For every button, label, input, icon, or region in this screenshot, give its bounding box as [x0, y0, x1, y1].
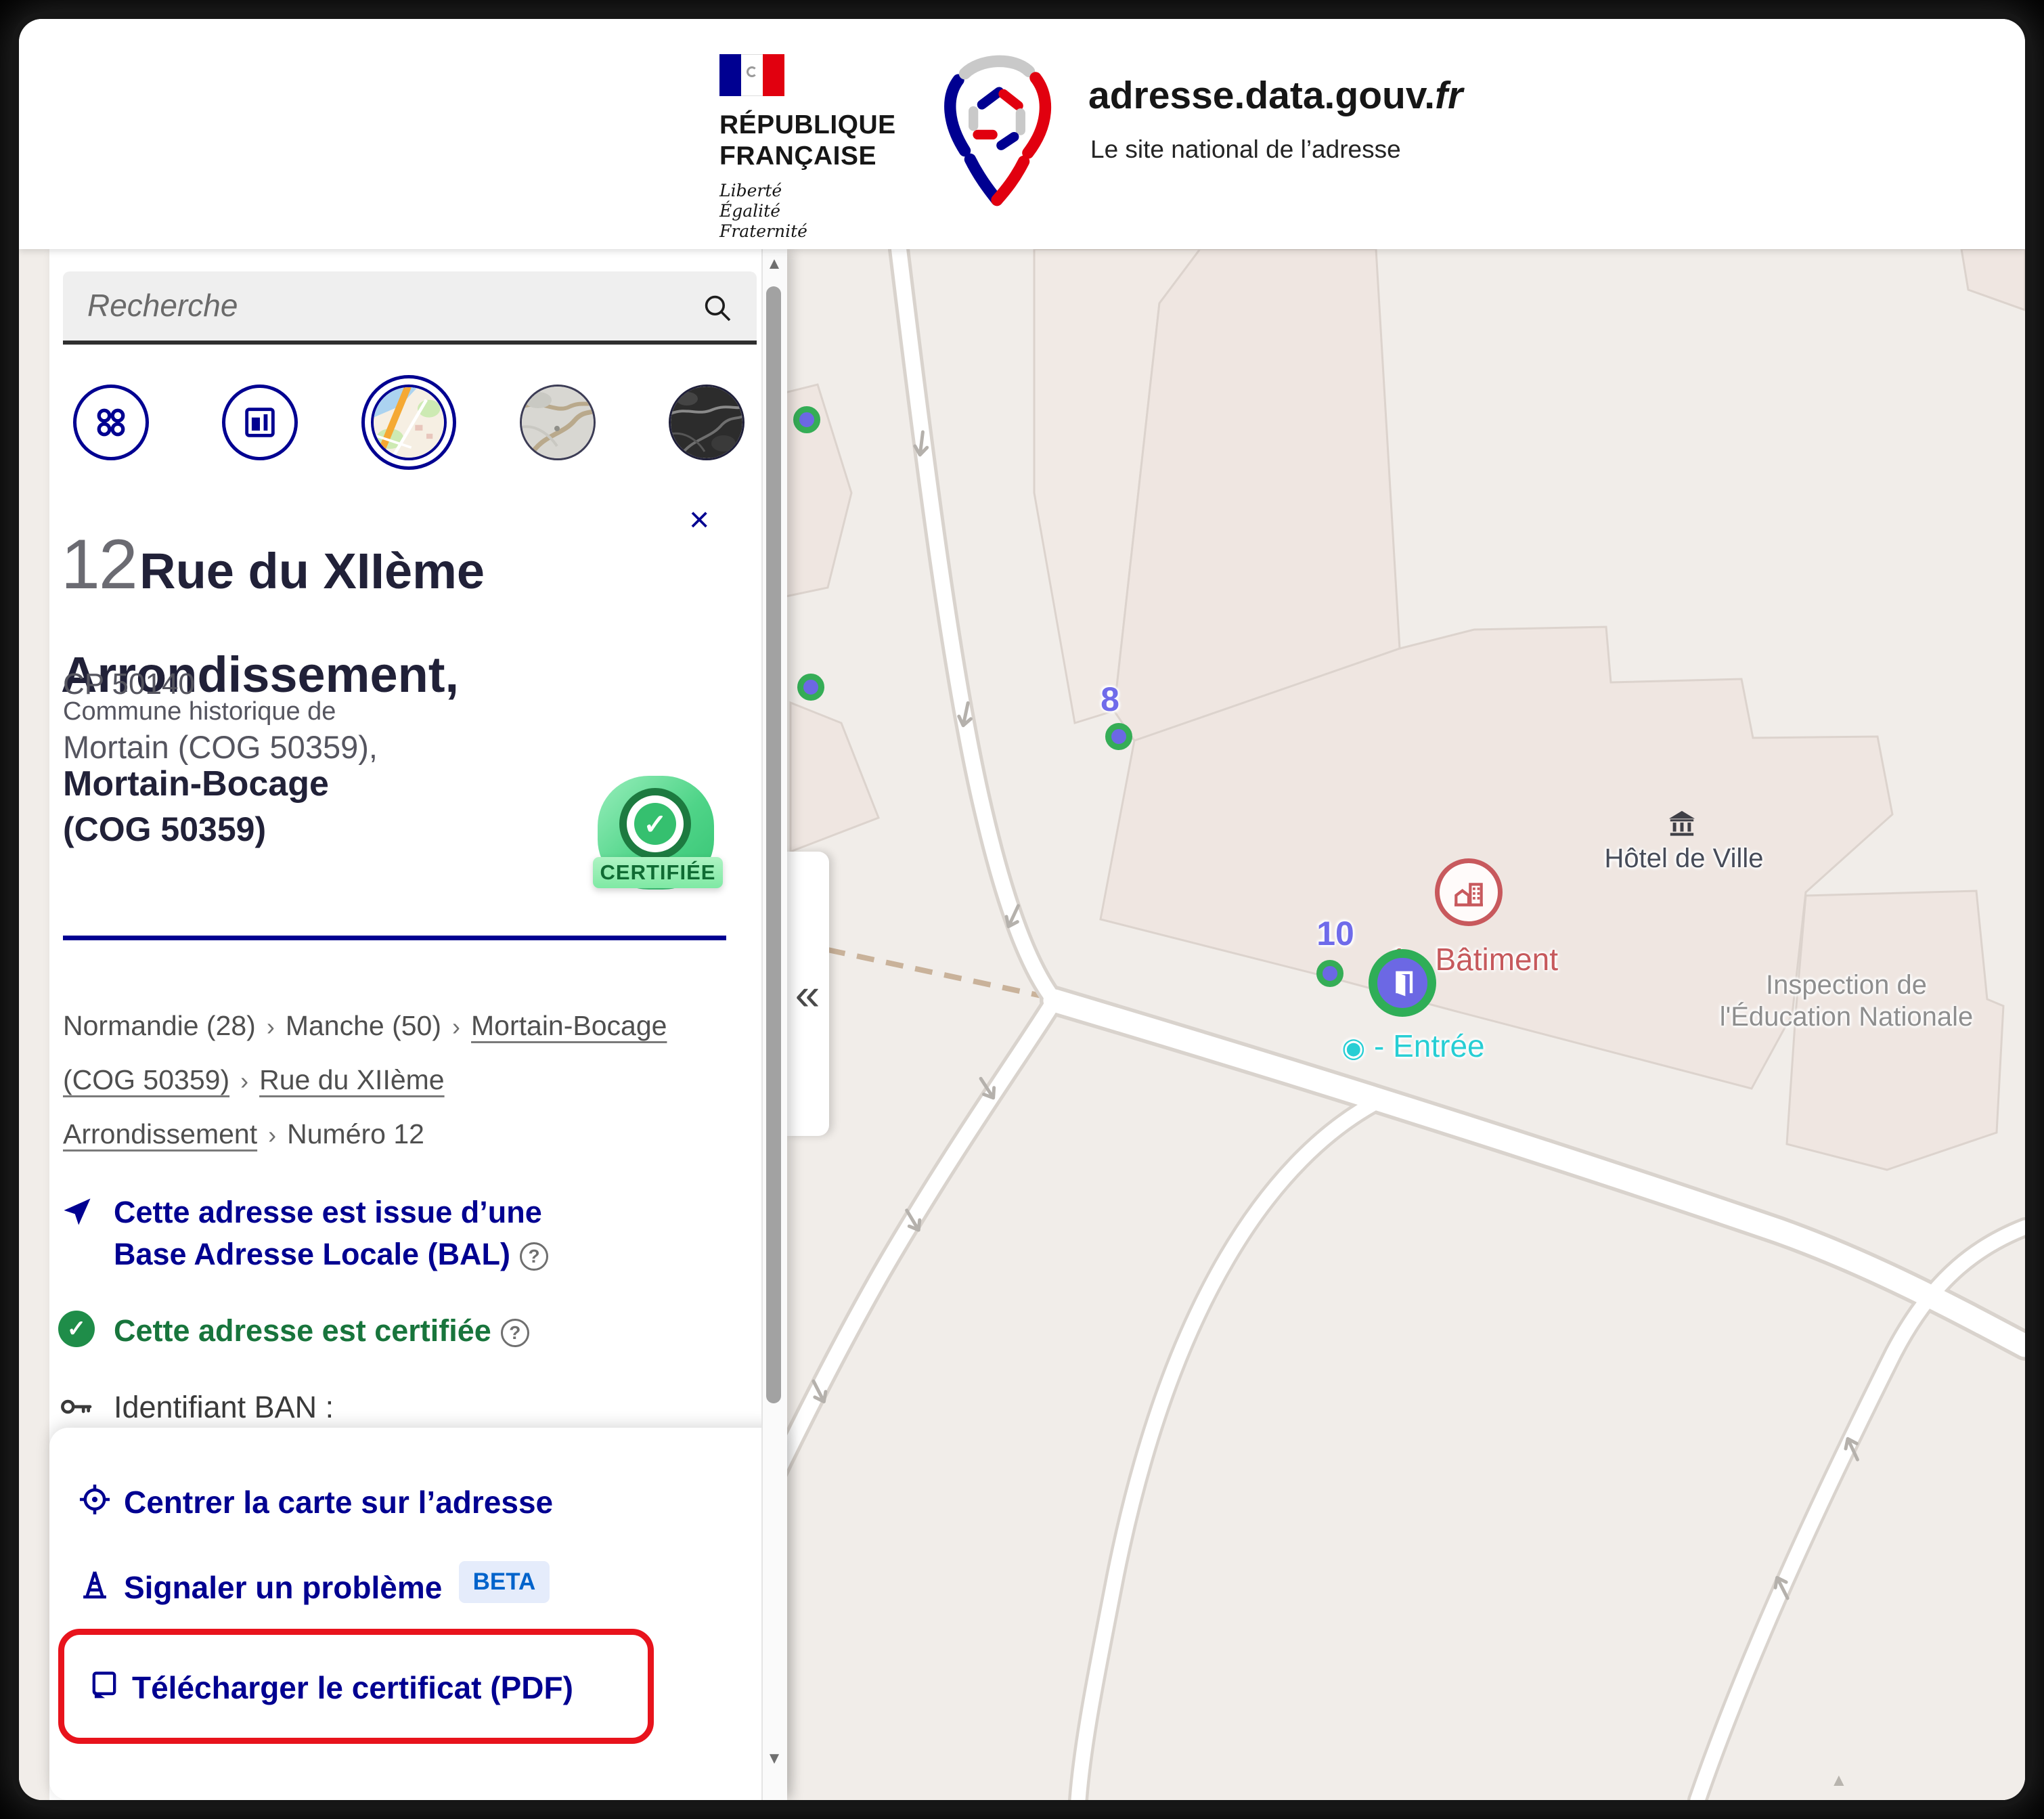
layer-button-satellite[interactable] [669, 385, 745, 460]
satellite-thumbnail [671, 387, 742, 458]
building-poi-icon[interactable] [1435, 858, 1503, 926]
beta-badge: BETA [459, 1561, 550, 1603]
bal-plane-icon [60, 1194, 95, 1229]
layer-button-cadastre[interactable] [222, 385, 298, 460]
address-postcode: CP 50140 [63, 667, 195, 701]
townhall-label: Hôtel de Ville [1549, 843, 1819, 874]
site-subtitle: Le site national de l’adresse [1090, 135, 1401, 164]
french-flag-icon [719, 54, 784, 96]
marker-8-label: 8 [1082, 680, 1138, 719]
highlight-annotation [58, 1629, 654, 1744]
key-icon [57, 1388, 95, 1426]
breadcrumb-item-departement[interactable]: Manche (50) [286, 1010, 441, 1041]
inspection-label-line1: Inspection de [1711, 969, 1982, 1001]
map-attribution-toggle-icon[interactable]: ▲ [1830, 1770, 1848, 1791]
search-input[interactable] [86, 271, 668, 339]
motto-liberte: Liberté [719, 180, 782, 201]
crosshair-icon [76, 1481, 113, 1518]
door-icon [1385, 965, 1420, 1001]
certified-info[interactable]: Cette adresse est certifiée? [114, 1313, 529, 1349]
entrance-bullet-icon: ◉ [1341, 1033, 1365, 1063]
help-icon[interactable]: ? [501, 1319, 529, 1347]
entrance-label: ◉ - Entrée [1278, 1028, 1549, 1064]
report-problem-button[interactable]: Signaler un problème [124, 1569, 442, 1606]
certified-info-text: Cette adresse est certifiée [114, 1313, 491, 1348]
marker-8-dot[interactable] [1105, 723, 1132, 750]
site-title-fr: fr [1435, 74, 1463, 117]
breadcrumb-item-numero[interactable]: Numéro 12 [287, 1118, 424, 1149]
certified-badge-label: CERTIFIÉE [593, 857, 723, 888]
bal-info[interactable]: Cette adresse est issue d’une Base Adres… [114, 1191, 587, 1275]
chevron-separator: › [240, 1067, 248, 1095]
layer-button-topo[interactable] [520, 385, 596, 460]
entrance-marker[interactable] [1369, 949, 1436, 1017]
republique-line1: RÉPUBLIQUE [719, 110, 896, 141]
site-title-main: adresse.data.gouv. [1088, 74, 1435, 117]
adresse-pin-logo[interactable] [933, 45, 1061, 214]
certified-badge-ring: ✓ [619, 788, 691, 860]
dots-grid-icon [91, 402, 131, 443]
screenshot-frame: 8 10 1 - Bâtiment [0, 0, 2044, 1819]
commune-cog: (COG 50359) [63, 810, 266, 849]
chevron-separator: › [452, 1013, 460, 1040]
breadcrumb: Normandie (28)›Manche (50)›Mortain-Bocag… [63, 999, 740, 1162]
scroll-down-icon[interactable]: ▼ [761, 1749, 787, 1768]
layer-button-plan-selected[interactable] [361, 375, 456, 470]
chevron-separator: › [267, 1013, 275, 1040]
certified-check-circle-icon: ✓ [58, 1311, 95, 1347]
townhall-icon [1666, 810, 1697, 841]
collapse-chevrons-icon: « [795, 968, 820, 1020]
chevron-separator: › [268, 1121, 276, 1149]
browser-viewport: 8 10 1 - Bâtiment [19, 19, 2025, 1800]
help-icon[interactable]: ? [520, 1242, 548, 1271]
entrance-label-text: - Entrée [1374, 1028, 1485, 1064]
panel-scrollbar-thumb[interactable] [766, 286, 781, 1403]
divider [63, 936, 726, 940]
bal-info-text: Cette adresse est issue d’une Base Adres… [114, 1195, 542, 1271]
search-box [63, 271, 757, 345]
historic-intro: Commune historique de [63, 697, 336, 726]
topo-thumbnail [522, 387, 594, 458]
inspection-label: Inspection de l'Éducation Nationale [1711, 969, 1982, 1033]
address-dot-partial-2[interactable] [797, 674, 824, 701]
search-icon[interactable] [701, 292, 734, 324]
collapse-panel-button[interactable]: « [786, 852, 829, 1136]
scroll-up-icon[interactable]: ▲ [761, 255, 787, 273]
inspection-label-line2: l'Éducation Nationale [1711, 1001, 1982, 1033]
plan-thumbnail [371, 385, 447, 460]
motto-egalite: Égalité [719, 200, 780, 221]
building-icon [1450, 873, 1488, 911]
historic-commune: Mortain (COG 50359), [63, 728, 378, 766]
split-square-icon [240, 403, 280, 442]
site-title[interactable]: adresse.data.gouv.fr [1088, 73, 1463, 118]
commune-name: Mortain-Bocage [63, 764, 329, 804]
address-dot-partial-1[interactable] [793, 406, 820, 433]
breadcrumb-item-region[interactable]: Normandie (28) [63, 1010, 256, 1041]
report-cone-icon [76, 1566, 113, 1603]
address-number: 12 [61, 525, 137, 604]
layer-button-pois[interactable] [73, 385, 149, 460]
center-map-button[interactable]: Centrer la carte sur l’adresse [124, 1484, 553, 1520]
motto-fraternite: Fraternité [719, 221, 807, 242]
certified-check-icon: ✓ [634, 803, 676, 845]
site-header: RÉPUBLIQUE FRANÇAISE Liberté Égalité Fra… [19, 19, 2025, 249]
ban-id-label: Identifiant BAN : [114, 1390, 334, 1425]
republique-line2: FRANÇAISE [719, 141, 876, 172]
